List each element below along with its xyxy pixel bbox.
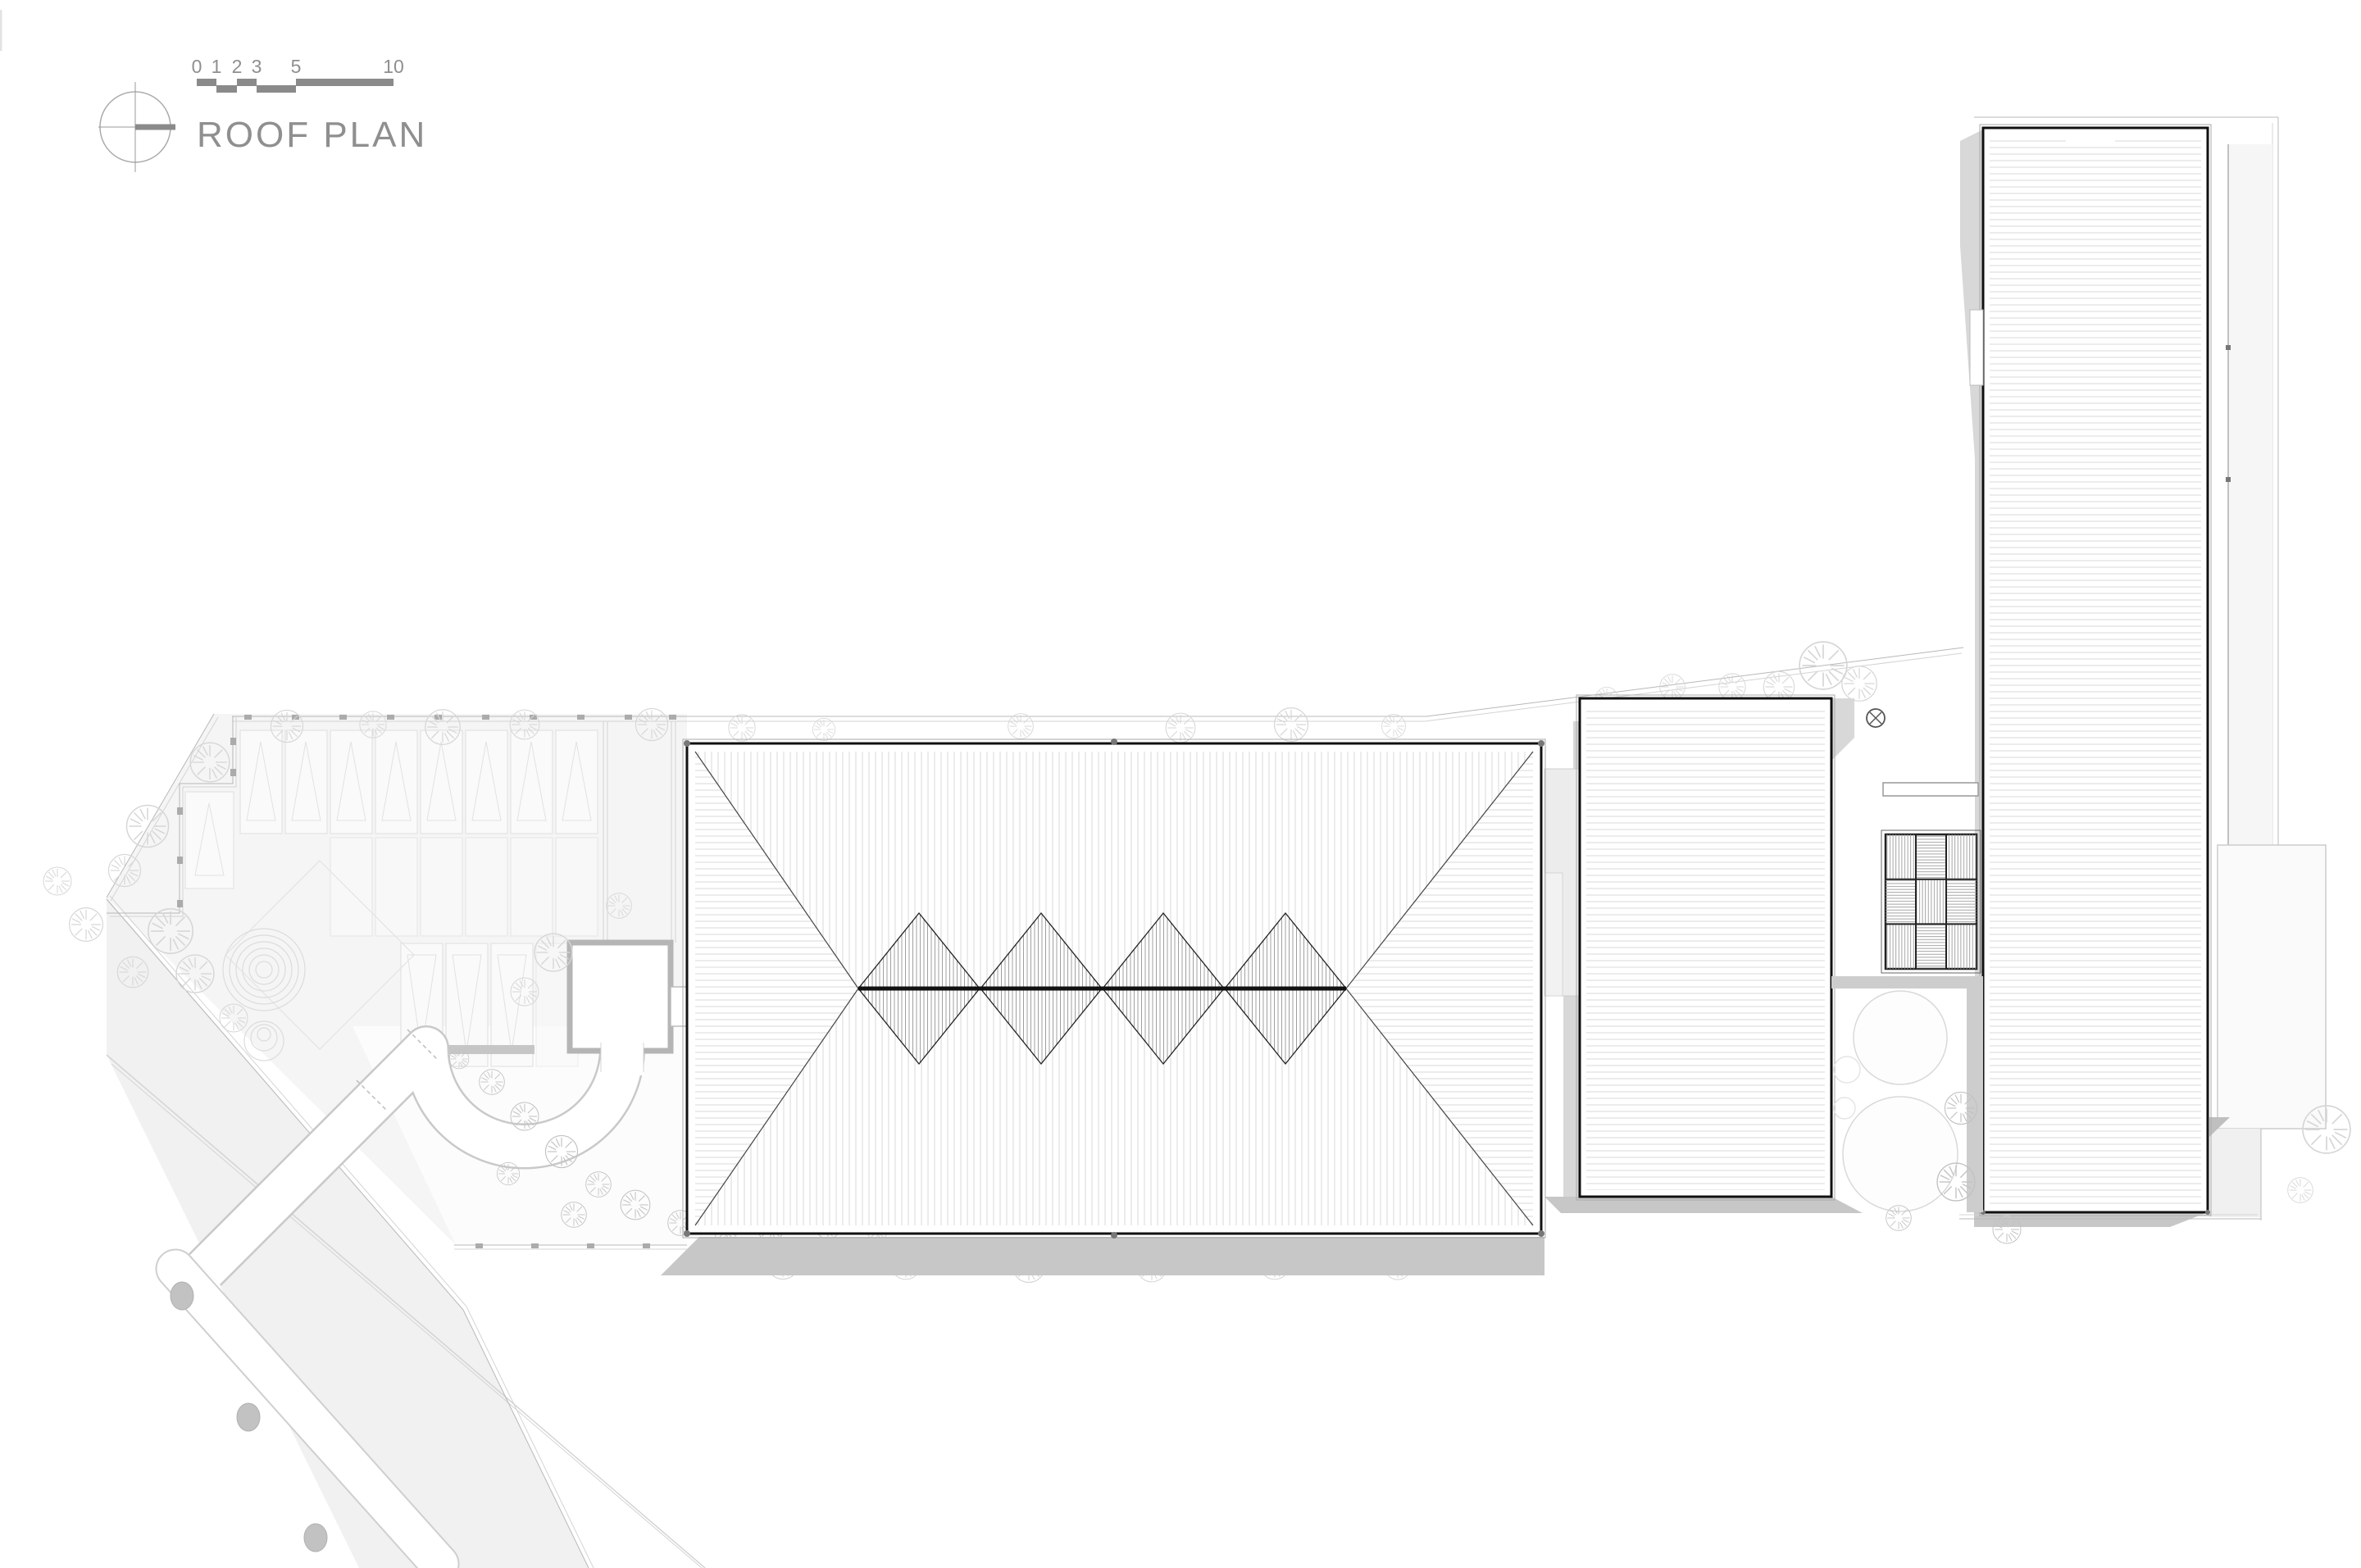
- sheet-edge-mark: [0, 10, 2, 51]
- drawing-title: ROOF PLAN: [197, 115, 427, 156]
- link-roof: [1544, 769, 1580, 996]
- title-block: 0 1 2 3 5 10 ROOF PLAN: [82, 74, 541, 189]
- scale-bar: 0 1 2 3 5 10: [197, 56, 410, 97]
- scale-label: 3: [252, 56, 262, 78]
- main-hall-roof: [683, 739, 1545, 1238]
- scale-label: 5: [291, 56, 302, 78]
- scale-label: 10: [383, 56, 404, 78]
- middle-wing-roof: [1576, 695, 1835, 1200]
- scale-label: 2: [232, 56, 243, 78]
- compass-north-icon: [82, 74, 189, 180]
- scale-label: 1: [212, 56, 222, 78]
- scale-label: 0: [192, 56, 202, 78]
- roof-plan-drawing: [0, 0, 2361, 1568]
- grid-skylight: [1881, 830, 1981, 973]
- east-annex-roof: [2218, 845, 2326, 1129]
- courtyard-wall: [1883, 783, 1978, 796]
- circled-x-drain-icon: [1867, 709, 1885, 727]
- tall-wing-roof: [1970, 125, 2211, 1216]
- roof-plan-sheet: 0 1 2 3 5 10 ROOF PLAN: [0, 0, 2361, 1568]
